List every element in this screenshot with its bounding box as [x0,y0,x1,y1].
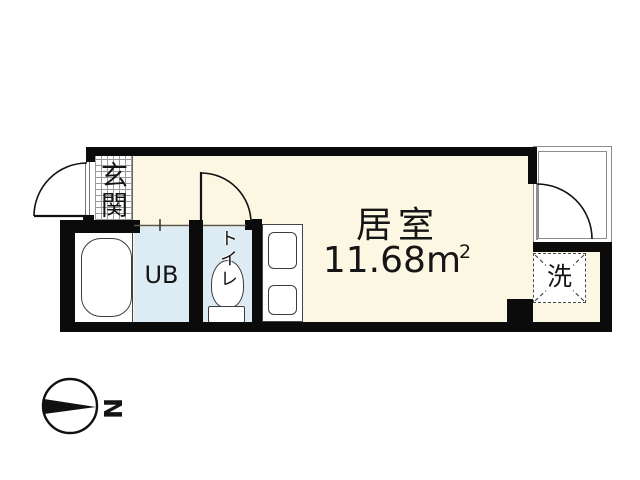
toilet-label: トイレ [218,229,236,289]
toilet-door-arc [201,173,251,223]
area-number: 11.68 [323,240,426,281]
area-exponent: 2 [459,241,471,263]
unit-bath-label: UB [134,261,189,289]
entrance-door-arc [34,163,87,216]
floorplan-canvas: 玄関 UB トイレ 居室 11.68m2 洗 N [0,0,640,480]
area-unit: m [426,240,461,281]
laundry-label: 洗 [546,263,573,291]
closet-door-arc [537,184,592,239]
entrance-label: 玄関 [98,161,125,221]
living-room-area: 11.68m2 [312,240,482,281]
north-label: N [98,398,127,419]
